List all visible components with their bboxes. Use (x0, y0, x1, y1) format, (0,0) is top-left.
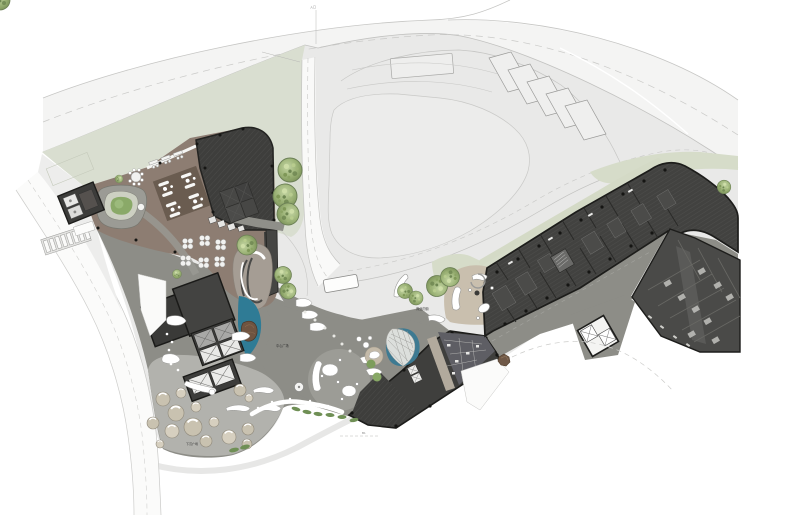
svg-text:B1: B1 (362, 431, 366, 435)
svg-text:下沉广场: 下沉广场 (186, 441, 198, 446)
svg-text:中心广场: 中心广场 (276, 343, 289, 348)
svg-text:入口: 入口 (310, 5, 316, 9)
svg-text:商业内街: 商业内街 (416, 306, 430, 311)
